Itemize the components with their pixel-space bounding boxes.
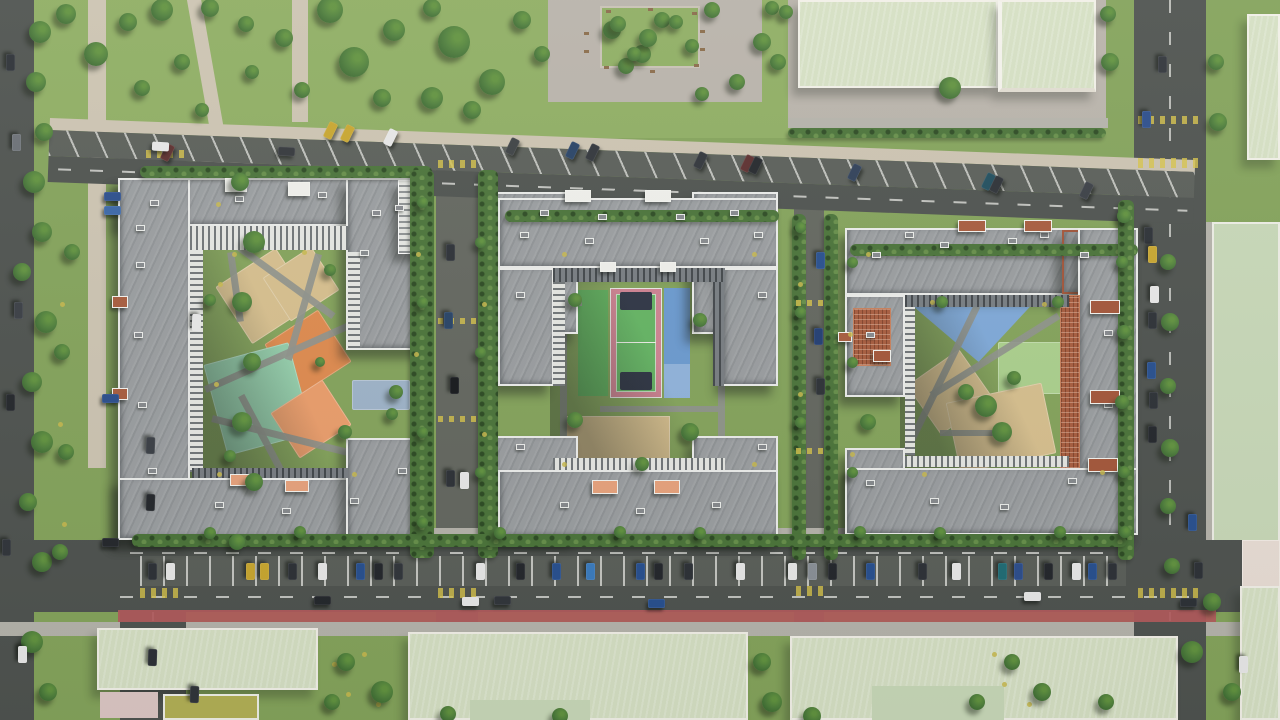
car [586, 563, 595, 580]
crosswalk-marking [438, 416, 476, 422]
yellow-shrub [930, 300, 935, 305]
tree [1203, 593, 1221, 611]
tree [35, 123, 53, 141]
car [166, 563, 175, 580]
tree [765, 1, 779, 15]
tree [134, 80, 150, 96]
car [1108, 563, 1117, 580]
yellow-shrub [58, 422, 63, 427]
rooftop-unit [372, 210, 381, 216]
car [394, 563, 403, 580]
context-olive-court [163, 694, 259, 720]
yellow-shrub [482, 432, 487, 437]
crosswalk-marking [438, 160, 476, 168]
tree [1054, 526, 1066, 538]
crosswalk-marking [796, 586, 824, 596]
tree [224, 450, 236, 462]
yellow-shrub [992, 652, 997, 657]
tree [231, 173, 249, 191]
block2-inner-facade-east [713, 282, 724, 386]
yellow-shrub [362, 652, 367, 657]
tree [1161, 439, 1179, 457]
tree [421, 87, 443, 109]
entrance-canopy [958, 220, 986, 232]
yellow-shrub [1002, 682, 1007, 687]
yellow-shrub [798, 392, 803, 397]
car [104, 206, 121, 215]
rooftop-unit [395, 205, 404, 211]
rooftop-unit [754, 232, 763, 238]
tree [383, 19, 405, 41]
yellow-shrub [922, 472, 927, 477]
tree [238, 16, 254, 32]
entrance-canopy [592, 480, 618, 494]
tree [232, 292, 252, 312]
car [191, 313, 201, 330]
tree [795, 417, 806, 428]
tree [417, 427, 428, 438]
courtyard-1-shadow [185, 245, 350, 478]
block3-inner-facade-south [905, 456, 1069, 467]
crosswalk-marking [1138, 158, 1202, 168]
rooftop-unit [398, 468, 407, 474]
yellow-shrub [752, 252, 757, 257]
bike-lane-red [118, 610, 1216, 622]
entrance-canopy [660, 262, 676, 272]
entrance-canopy [112, 296, 128, 308]
car [1158, 56, 1167, 73]
tree [52, 544, 68, 560]
bench [606, 10, 611, 13]
tree [243, 231, 265, 253]
tree [58, 444, 74, 460]
car [260, 563, 269, 580]
context-building-bottom-right-wall [1242, 540, 1280, 588]
car [1144, 227, 1153, 244]
yellow-shrub [217, 472, 222, 477]
tree [324, 694, 340, 710]
tree [568, 293, 582, 307]
car [277, 146, 294, 156]
tree [803, 707, 821, 720]
crosswalk-marking [796, 300, 824, 306]
car [1180, 598, 1197, 607]
courtyard-3-shadow [900, 290, 1072, 470]
rooftop-unit [866, 480, 875, 486]
tree [174, 54, 190, 70]
bench [648, 8, 653, 11]
hedge-strip [132, 534, 1127, 547]
tree [704, 2, 720, 18]
rooftop-unit [215, 502, 224, 508]
hedge-strip [792, 214, 806, 560]
car [648, 599, 665, 608]
yellow-shrub [352, 472, 357, 477]
tree [969, 694, 985, 710]
bench [700, 30, 705, 33]
yellow-shrub [562, 462, 567, 467]
car [816, 252, 825, 269]
tree [475, 347, 486, 358]
car [1148, 312, 1157, 329]
car [18, 646, 27, 663]
tree [795, 307, 806, 318]
tree [39, 683, 57, 701]
car [12, 134, 21, 151]
tree [854, 526, 866, 538]
tree [294, 82, 310, 98]
tree [779, 5, 793, 19]
tree [669, 15, 683, 29]
car [998, 563, 1007, 580]
context-pink-court [100, 692, 158, 718]
car [866, 563, 875, 580]
car [462, 597, 479, 606]
tree [338, 425, 352, 439]
car [684, 563, 693, 580]
yellow-shrub [752, 462, 757, 467]
tree [389, 385, 403, 399]
car [1044, 563, 1053, 580]
rooftop-unit [1068, 478, 1077, 484]
car [1148, 246, 1157, 263]
rooftop-unit [1104, 330, 1113, 336]
rooftop-unit [148, 468, 157, 474]
tree [417, 517, 428, 528]
car [246, 563, 255, 580]
block2-south-wing [498, 470, 778, 538]
tree [936, 296, 948, 308]
tree [1007, 371, 1021, 385]
block1-inner-facade-west [190, 250, 203, 472]
crosswalk-marking [1138, 588, 1202, 598]
car [516, 563, 525, 580]
yellow-shrub [1042, 302, 1047, 307]
rooftop-unit [636, 508, 645, 514]
yellow-shrub [302, 250, 307, 255]
entrance-canopy [654, 480, 680, 494]
tree [1117, 209, 1131, 223]
rooftop-unit [136, 225, 145, 231]
hedge-strip [478, 170, 498, 558]
tree [1101, 53, 1119, 71]
car [494, 596, 511, 605]
tree [294, 526, 306, 538]
context-building-bottom-1 [97, 628, 318, 690]
tree [195, 103, 209, 117]
tree [438, 26, 470, 58]
tree [479, 69, 505, 95]
tree [1181, 641, 1203, 663]
tree [19, 493, 37, 511]
car [104, 192, 121, 201]
tree [232, 412, 252, 432]
tree [1160, 498, 1176, 514]
car [1024, 592, 1041, 601]
car [6, 54, 15, 71]
tree [31, 431, 53, 453]
car [552, 563, 561, 580]
car [1147, 362, 1156, 379]
tree [440, 706, 456, 720]
tree [339, 47, 369, 77]
rooftop-unit [150, 200, 159, 206]
tree [695, 87, 709, 101]
tree [417, 197, 428, 208]
tree [204, 527, 216, 539]
car [1150, 286, 1159, 303]
tree [32, 222, 52, 242]
car [736, 563, 745, 580]
car [446, 244, 455, 261]
tree [627, 47, 641, 61]
tree [681, 423, 699, 441]
car [636, 563, 645, 580]
tree [847, 357, 858, 368]
tree [54, 344, 70, 360]
rooftop-unit [930, 498, 939, 504]
car [288, 563, 297, 580]
car [14, 302, 23, 319]
car [6, 394, 15, 411]
context-building-top-1 [798, 0, 998, 88]
tree [243, 353, 261, 371]
bench [604, 66, 609, 69]
yellow-shrub [62, 522, 67, 527]
car [1142, 111, 1151, 128]
rooftop-unit [235, 196, 244, 202]
tree [371, 681, 393, 703]
road-bottom-lane-line-1 [130, 552, 1130, 554]
context-building-bottom-right [1240, 586, 1280, 720]
tree [1119, 526, 1131, 538]
tree [1164, 558, 1180, 574]
rooftop-unit [758, 444, 767, 450]
road-bottom-lane-line-2 [120, 596, 1214, 598]
tree [13, 263, 31, 281]
plot-edge-path [788, 118, 1108, 128]
tree [229, 534, 245, 550]
rooftop-unit [516, 292, 525, 298]
yellow-shrub [60, 302, 65, 307]
tree [337, 653, 355, 671]
tree [315, 357, 325, 367]
tree [934, 527, 946, 539]
yellow-shrub [562, 252, 567, 257]
block1-inner-facade-south [192, 468, 348, 478]
tree [29, 21, 51, 43]
tree [417, 297, 428, 308]
block2-west-wing [498, 268, 554, 386]
rooftop-unit [540, 210, 549, 216]
tree [1160, 378, 1176, 394]
rooftop-unit [712, 502, 721, 508]
context-building-bottom-2-court [470, 700, 590, 720]
car [788, 563, 797, 580]
tree [635, 457, 649, 471]
tree [847, 467, 858, 478]
rooftop-unit [730, 210, 739, 216]
tree [1116, 256, 1128, 268]
car [314, 596, 331, 605]
tree [762, 692, 782, 712]
car [356, 563, 365, 580]
tree [1209, 113, 1227, 131]
rooftop-unit [1040, 232, 1049, 238]
hedge-strip [410, 170, 434, 558]
tree [475, 467, 486, 478]
entrance-canopy [600, 262, 616, 272]
rooftop-unit [940, 242, 949, 248]
hedge-strip [824, 214, 838, 560]
car [147, 648, 157, 665]
tree [770, 54, 786, 70]
entrance-canopy [288, 182, 310, 196]
car [1014, 563, 1023, 580]
tree [475, 237, 486, 248]
tree [463, 101, 481, 119]
bench [650, 70, 655, 73]
car [654, 563, 663, 580]
car [145, 493, 155, 510]
tree [245, 473, 263, 491]
car [145, 436, 155, 453]
tree [1223, 683, 1241, 701]
car [476, 563, 485, 580]
rooftop-unit [1000, 504, 1009, 510]
rooftop-unit [350, 498, 359, 504]
tree [386, 408, 398, 420]
rooftop-unit [866, 332, 875, 338]
car [808, 563, 817, 580]
yellow-shrub [848, 332, 853, 337]
entrance-canopy [873, 350, 891, 362]
tree [639, 29, 657, 47]
yellow-shrub [1100, 470, 1105, 475]
tree [939, 77, 961, 99]
block2-north-wing [498, 198, 778, 268]
car [1194, 562, 1203, 579]
car [450, 377, 459, 394]
tree [614, 526, 626, 538]
tree [1098, 694, 1114, 710]
tree [1117, 325, 1131, 339]
block1-inner-facade-northeast [348, 252, 360, 348]
tree [151, 0, 173, 21]
tree [860, 414, 876, 430]
crosswalk-marking [796, 448, 824, 454]
hedge-strip [788, 128, 1106, 138]
car [816, 378, 825, 395]
rooftop-unit [905, 232, 914, 238]
rooftop-unit [1080, 252, 1089, 258]
tree [373, 89, 391, 107]
car [828, 563, 837, 580]
rooftop-unit [598, 214, 607, 220]
rooftop-unit [700, 238, 709, 244]
yellow-shrub [850, 452, 855, 457]
tree [494, 527, 506, 539]
block1-inner-facade-north [190, 226, 348, 250]
entrance-canopy [565, 190, 591, 202]
tree [1160, 254, 1176, 270]
car [1088, 563, 1097, 580]
tree [119, 13, 137, 31]
tree [694, 527, 706, 539]
tree [685, 39, 699, 53]
yellow-shrub [866, 252, 871, 257]
tree [552, 708, 568, 720]
tree [975, 395, 997, 417]
tree [753, 33, 771, 51]
car [374, 563, 383, 580]
yellow-shrub [218, 282, 223, 287]
tree [22, 372, 42, 392]
tree [1052, 296, 1064, 308]
block2-inner-facade-west [553, 282, 565, 386]
tree [693, 313, 707, 327]
bench [700, 48, 705, 51]
car [1239, 656, 1248, 673]
bench [584, 32, 589, 35]
bench [694, 64, 699, 67]
rooftop-unit [318, 192, 327, 198]
yellow-shrub [216, 202, 221, 207]
car [102, 394, 119, 403]
tree [654, 12, 670, 28]
tree [1208, 54, 1224, 70]
tree [23, 171, 45, 193]
yellow-shrub [346, 692, 351, 697]
tree [64, 244, 80, 260]
rooftop-unit [676, 214, 685, 220]
rooftop-unit [134, 332, 143, 338]
yellow-shrub [414, 352, 419, 357]
hedge-strip [850, 244, 1138, 256]
entrance-canopy [1090, 300, 1120, 314]
bench [692, 12, 697, 15]
rooftop-unit [758, 292, 767, 298]
tree [610, 16, 626, 32]
tree [1100, 6, 1116, 22]
crosswalk-marking [140, 588, 184, 598]
rooftop-unit [560, 502, 569, 508]
rooftop-unit [520, 232, 529, 238]
entrance-canopy [645, 190, 671, 202]
car [1188, 514, 1197, 531]
car [460, 472, 469, 489]
tree [26, 72, 46, 92]
tree [513, 11, 531, 29]
rooftop-unit [282, 508, 291, 514]
car [444, 312, 453, 329]
tree [275, 29, 293, 47]
entrance-canopy [285, 480, 309, 492]
car [952, 563, 961, 580]
tree [1161, 313, 1179, 331]
tree [1033, 683, 1051, 701]
tree [992, 422, 1012, 442]
block2-inner-facade-north [553, 268, 725, 282]
tree [729, 74, 745, 90]
car [148, 563, 157, 580]
car [2, 539, 11, 556]
tree [204, 294, 216, 306]
yellow-shrub [214, 382, 219, 387]
rooftop-unit [516, 444, 525, 450]
rooftop-unit [136, 262, 145, 268]
car [102, 538, 119, 547]
